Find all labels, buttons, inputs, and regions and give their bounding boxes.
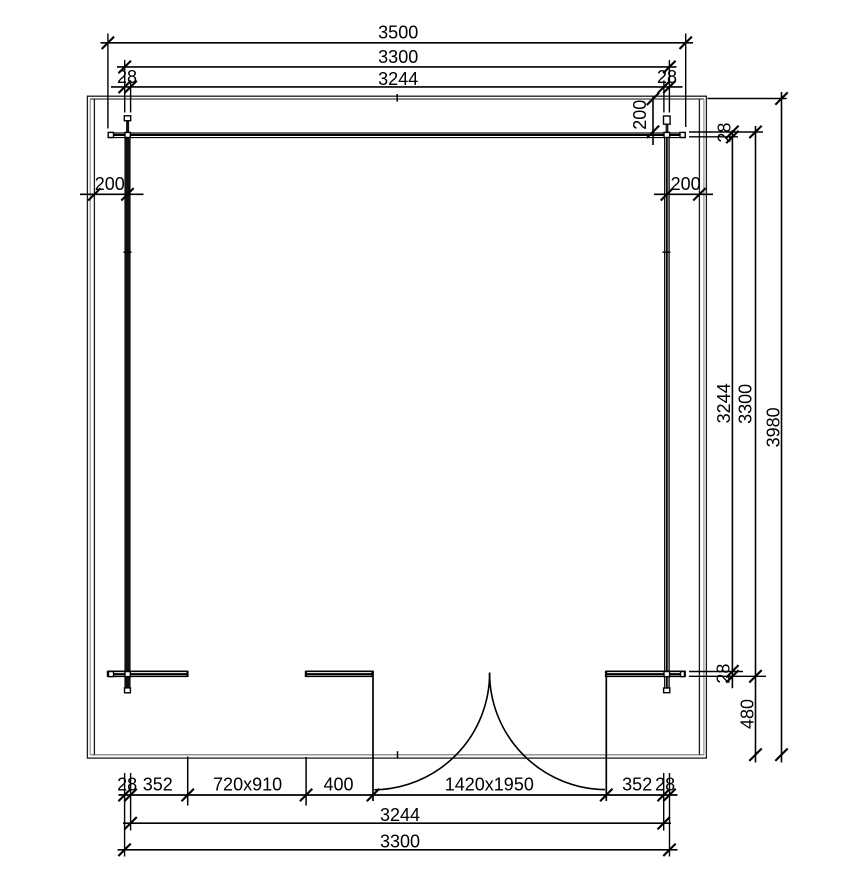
svg-text:28: 28 bbox=[714, 123, 734, 143]
svg-text:28: 28 bbox=[655, 774, 675, 794]
svg-text:3244: 3244 bbox=[378, 69, 418, 89]
svg-text:3980: 3980 bbox=[763, 407, 783, 447]
svg-text:720x910: 720x910 bbox=[213, 774, 282, 794]
svg-text:3500: 3500 bbox=[378, 22, 418, 42]
svg-text:400: 400 bbox=[323, 774, 353, 794]
svg-text:352: 352 bbox=[143, 774, 173, 794]
svg-text:200: 200 bbox=[630, 100, 650, 130]
svg-text:3300: 3300 bbox=[378, 47, 418, 67]
svg-text:200: 200 bbox=[95, 174, 125, 194]
svg-text:28: 28 bbox=[117, 67, 137, 87]
svg-text:3244: 3244 bbox=[714, 383, 734, 423]
svg-text:3300: 3300 bbox=[380, 831, 420, 851]
svg-text:3300: 3300 bbox=[735, 384, 755, 424]
svg-text:28: 28 bbox=[117, 774, 137, 794]
svg-text:28: 28 bbox=[714, 664, 734, 684]
svg-text:3244: 3244 bbox=[380, 805, 420, 825]
svg-text:28: 28 bbox=[657, 67, 677, 87]
svg-text:352: 352 bbox=[622, 774, 652, 794]
svg-text:200: 200 bbox=[671, 174, 701, 194]
svg-text:480: 480 bbox=[737, 699, 757, 729]
svg-text:1420x1950: 1420x1950 bbox=[445, 774, 534, 794]
